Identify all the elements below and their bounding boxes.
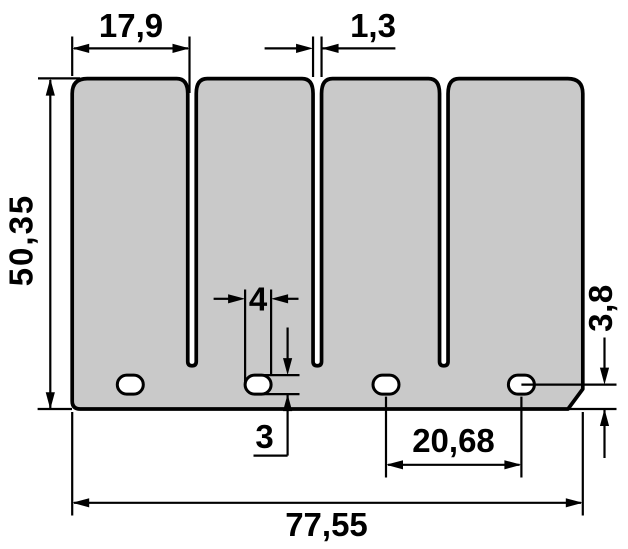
svg-text:20,68: 20,68	[412, 422, 495, 459]
svg-text:1,3: 1,3	[350, 7, 396, 44]
svg-text:3,8: 3,8	[582, 284, 619, 332]
svg-text:4: 4	[249, 281, 268, 318]
svg-text:3: 3	[255, 418, 273, 455]
svg-text:50,35: 50,35	[2, 194, 39, 287]
svg-text:17,9: 17,9	[99, 7, 163, 44]
svg-text:77,55: 77,55	[285, 506, 368, 543]
